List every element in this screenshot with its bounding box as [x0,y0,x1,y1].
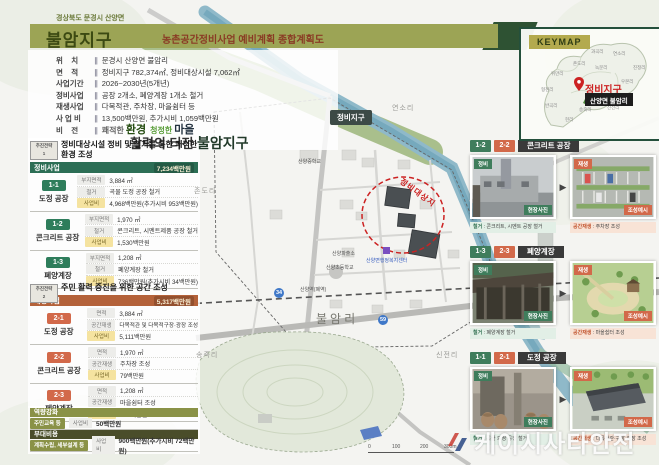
after-photo: 재생 조성예시 [570,155,656,219]
row-value: 1,970 ㎡ [117,215,140,224]
map-facility-police: 산양파출소 [332,250,355,257]
card-header: 1-2 2-2 콘크리트 공장 [470,140,656,152]
group-name: 도정 공장 [39,193,69,204]
info-row-period: 사업기간 ∥ 2026~2030년(5개년) [56,79,356,88]
page-title: 불암지구 [46,26,113,51]
table-header-label: 정비사업 [34,163,60,173]
keymap-village: 현리 [565,117,573,123]
row-value: 폐양계장 철거 [118,265,154,274]
arrow-right-icon: ▶ [556,288,570,299]
incidental-value: 900백만원(추가시비 72백만원) [119,435,199,455]
divider-icon: ∥ [94,102,98,111]
watermark-logo-icon [446,430,470,454]
group-name: 콘크리트 공장 [37,365,80,376]
after-caption: 공간재생 : 주차장 조성 [570,222,656,233]
capacity-header: 역량강화 [30,408,198,417]
row-value: 3,884 ㎡ [109,176,132,185]
info-value: 다목적관, 주차장, 마을쉼터 등 [102,102,195,111]
project-info-list: 위 치 ∥ 문경시 산양면 불암리 면 적 ∥ 정비지구 782,374㎡, 정… [56,56,356,137]
divider-icon: ∥ [94,68,98,77]
card-number-badge: 1-2 [470,140,491,152]
row-value: 5,111백만원 [119,332,151,341]
plan-poster: 연소리 존도리 불암리 송죽리 신전리 산양중학교 산양역(폐역) 산양파출소 … [0,0,659,465]
row-value: 1,970 ㎡ [120,348,143,357]
keymap-village: 과곡리 [591,49,603,55]
after-photo: 재생 조성예시 [570,367,656,431]
photo-label: 조성예시 [624,205,652,215]
scale-tick: 100 [392,444,400,450]
table-row: 1-1도정 공장 부지면적3,884 ㎡ 철거곡물 도정 공장 철거 사업비4,… [30,173,198,212]
keymap-village: 위만리 [551,71,563,77]
capacity-value: 50백만원 [96,418,121,428]
keymap-village: 존도리 [573,61,585,67]
keymap-panel: KEYMAP 현리 반곡리 형천리 위만리 연소리 존도리 진정리 과곡리 녹문… [519,27,659,141]
group-number-badge: 1-1 [42,180,66,191]
info-label: 위 치 [56,56,92,65]
group-number-badge: 2-3 [47,390,71,401]
watermark-text: 케이시사타안전 [474,424,636,459]
region-label: 경상북도 문경시 산양면 [56,13,124,23]
row-value: 1,530백만원 [117,238,150,247]
row-value: 79백만원 [120,371,144,380]
info-row-demolition: 정비사업 ∥ 공장 2개소, 폐양계장 1개소 철거 [56,91,356,100]
group-number-badge: 2-1 [47,313,71,324]
table-header-total: 5,317백만원 [154,296,194,306]
map-facility-station: 산양역(폐역) [300,286,326,293]
strategy1-title: 정비대상시설 정비 및 철거를 통한 쾌적한 환경 조성 [61,140,198,160]
info-row-location: 위 치 ∥ 문경시 산양면 불암리 [56,56,356,65]
keymap-marker-badge: 산양면 불암리 [585,93,633,106]
row-label: 부지면적 [85,214,113,224]
row-value: 다목적관 및 다목적구장·광장 조성 [119,321,198,329]
map-pin-icon [574,77,584,91]
after-photo: 재생 조성예시 [570,261,656,325]
incidental-label: 사업비 [92,436,114,454]
card-header: 1-1 2-1 도정 공장 [470,352,656,364]
row-value: 3,884 ㎡ [119,309,142,318]
keymap-village: 형천리 [541,87,553,93]
row-value: 주차장 조성 [120,359,150,368]
strategy1-badge: 추진전략1 [30,141,58,160]
map-village-songjuk: 송죽리 [196,350,218,360]
group-number-badge: 1-2 [46,219,70,230]
photo-label: 현장사진 [524,205,552,215]
keymap-label: KEYMAP [529,35,590,49]
after-tag: 재생 [574,371,592,381]
map-facility-elementary-school: 산양초등학교 [326,264,354,271]
row-label: 면적 [88,386,116,396]
strategy2-title: 주민 활력 증진을 위한 공간 조성 [61,283,198,293]
keymap-village: 반곡리 [545,103,557,109]
capacity-label: 사업비 [69,418,92,428]
keymap-village: 진정리 [633,65,645,71]
row-label: 사업비 [85,237,113,247]
row-label: 철거 [85,226,113,236]
row-value: 콘크리트, 시멘트제품 공장 철거 [117,226,198,235]
info-label: 면 적 [56,68,92,77]
row-label: 면적 [88,347,116,357]
info-value: 정비지구 782,374㎡, 정비대상시설 7,062㎡ [102,68,240,77]
road-badge-59: 59 [378,315,388,325]
after-tag: 재생 [574,265,592,275]
map-village-sinjeon: 신전리 [436,350,458,360]
group-number-badge: 1-3 [46,257,70,268]
info-label: 정비사업 [56,91,92,100]
before-caption: 철거 : 콘크리트, 시멘트 공장 철거 [470,222,556,233]
card-number-badge: 1-1 [470,352,491,364]
scale-tick: 0 [368,444,371,450]
card-title: 도정 공장 [518,352,566,364]
group-name: 폐양계장 [44,270,72,281]
row-label: 면적 [87,308,115,318]
row-label: 철거 [86,264,114,274]
before-photo: 정비 현장사진 [470,367,556,431]
photo-label: 현장사진 [524,311,552,321]
photo-label: 조성예시 [624,311,652,321]
incidental-badge: 계획수립, 세부설계 등 [30,440,88,451]
before-photo: 정비 현장사진 [470,155,556,219]
group-name: 도정 공장 [44,326,74,337]
row-value: 곡물 도정 공장 철거 [109,187,160,196]
row-value: 1,208 ㎡ [118,253,141,262]
row-label: 부지면적 [86,253,114,263]
row-label: 공간재생 [88,397,116,407]
table-row: 2-2콘크리트 공장 면적1,970 ㎡ 공간재생주차장 조성 사업비79백만원 [30,345,198,384]
card-number-badge: 2-3 [494,246,515,258]
keymap-village: 연소리 [613,51,625,57]
info-label: 사업기간 [56,79,92,88]
watermark: 케이시사타안전 [446,424,636,459]
card-concrete-factory: 1-2 2-2 콘크리트 공장 정비 현장사진 ▶ 재생 조성예시 철거 : 콘… [470,140,656,233]
divider-icon: ∥ [94,114,98,123]
before-tag: 정비 [474,159,492,169]
page-subtitle: 농촌공간정비사업 예비계획 종합계획도 [162,31,324,46]
divider-icon: ∥ [94,79,98,88]
row-label: 사업비 [88,370,116,380]
table-row: 1-2콘크리트 공장 부지면적1,970 ㎡ 철거콘크리트, 시멘트제품 공장 … [30,212,198,251]
keymap-village: 녹문리 [595,65,607,71]
info-row-area: 면 적 ∥ 정비지구 782,374㎡, 정비대상시설 7,062㎡ [56,68,356,77]
keymap-village: 우본리 [621,79,633,85]
info-row-regeneration: 재생사업 ∥ 다목적관, 주차장, 마을쉼터 등 [56,102,356,111]
capacity-badge: 주민교육 등 [30,418,65,429]
divider-icon: ∥ [94,91,98,100]
divider-icon: ∥ [94,126,98,135]
card-number-badge: 2-1 [494,352,515,364]
card-number-badge: 1-3 [470,246,491,258]
arrow-right-icon: ▶ [556,182,570,193]
row-value: 마을쉼터 조성 [120,398,156,407]
row-label: 철거 [77,187,105,197]
strategy1-table-header: 정비사업 7,234백만원 [30,162,198,173]
info-row-budget: 사 업 비 ∥ 13,500백만원, 추가시비 1,059백만원 [56,114,356,123]
row-label: 부지면적 [77,175,105,185]
capacity-row: 주민교육 등 사업비 50백만원 [30,417,198,430]
incidental-row: 계획수립, 세부설계 등 사업비 900백만원(추가시비 72백만원) [30,439,198,452]
before-caption: 철거 : 폐양계장 철거 [470,328,556,339]
strategy2-badge: 추진전략2 [30,284,58,303]
info-value: 13,500백만원, 추가시비 1,059백만원 [102,114,219,123]
before-tag: 정비 [474,265,492,275]
map-village-yeonso: 연소리 [392,103,414,113]
capacity-section: 역량강화 주민교육 등 사업비 50백만원 부대비용 계획수립, 세부설계 등 … [30,408,198,452]
info-label: 사 업 비 [56,114,92,123]
info-value: 문경시 산양면 불암리 [102,56,168,65]
row-label: 공간재생 [88,359,116,369]
info-label: 비 전 [56,126,92,135]
table-header-total: 7,234백만원 [154,163,194,173]
keymap-village: 송죽리 [579,107,591,113]
card-number-badge: 2-2 [494,140,515,152]
after-tag: 재생 [574,159,592,169]
before-tag: 정비 [474,371,492,381]
row-value: 4,968백만원(추가시비 953백만원) [109,199,198,208]
after-caption: 공간재생 : 마을쉼터 조성 [570,328,656,339]
map-facility-township-office: 산양면행정복지센터 [366,257,407,264]
info-label: 재생사업 [56,102,92,111]
group-name: 콘크리트 공장 [36,232,79,243]
strategy1-section: 추진전략1 정비대상시설 정비 및 철거를 통한 쾌적한 환경 조성 정비사업 … [30,140,198,289]
group-number-badge: 2-2 [47,352,71,363]
divider-icon: ∥ [94,56,98,65]
scale-tick: 200 [420,444,428,450]
table-row: 2-1도정 공장 면적3,884 ㎡ 공간재생다목적관 및 다목적구장·광장 조… [30,306,198,345]
card-poultry-farm: 1-3 2-3 폐양계장 정비 현장사진 ▶ 재생 조성예시 철거 : 폐양계장… [470,246,656,339]
map-facility-middle-school: 산양중학교 [298,158,321,165]
arrow-right-icon: ▶ [556,394,570,405]
info-value: 2026~2030년(5개년) [102,79,170,88]
row-value: 1,208 ㎡ [120,386,143,395]
row-label: 사업비 [77,198,105,208]
card-title: 콘크리트 공장 [518,140,579,152]
map-village-bulam: 불암리 [316,310,358,327]
road-badge-34: 34 [274,288,284,298]
strategy2-section: 추진전략2 주민 활력 증진을 위한 공간 조성 재생사업 5,317백만원 2… [30,283,198,422]
row-label: 사업비 [87,331,115,341]
info-value: 공장 2개소, 폐양계장 1개소 철거 [102,91,204,100]
card-title: 폐양계장 [518,246,564,258]
before-photo: 정비 현장사진 [470,261,556,325]
row-label: 공간재생 [87,320,115,330]
card-header: 1-3 2-3 폐양계장 [470,246,656,258]
